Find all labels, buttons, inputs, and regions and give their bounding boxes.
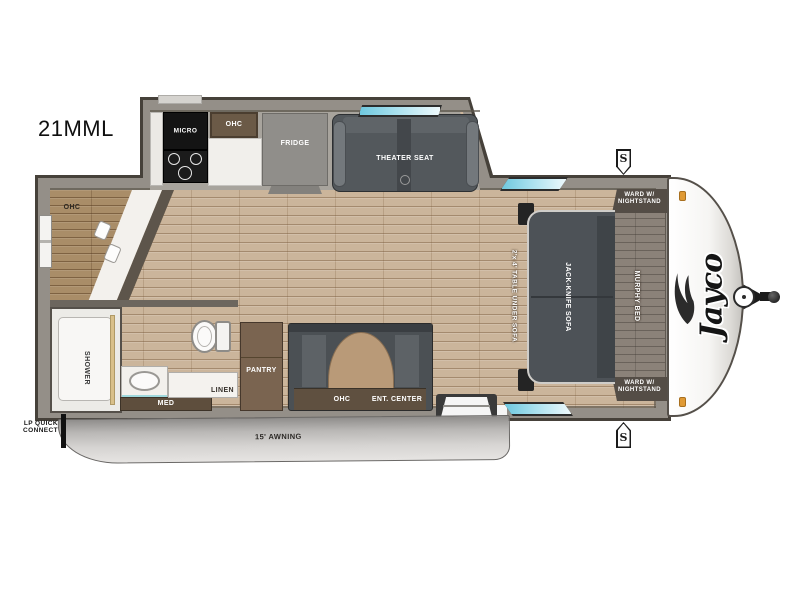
lp-label-line2: CONNECT bbox=[23, 427, 58, 434]
kitchen-ohc-label: OHC bbox=[226, 121, 243, 129]
jack-knife-sofa bbox=[527, 210, 615, 384]
ent-right-panel bbox=[395, 335, 419, 387]
brand-logo: Jayco bbox=[673, 254, 730, 338]
burner-icon bbox=[178, 166, 192, 180]
ward-nightstand-top: WARD W/ NIGHTSTAND bbox=[612, 189, 667, 213]
fridge-label: FRIDGE bbox=[281, 140, 310, 148]
ward-bottom-line2: NIGHTSTAND bbox=[618, 387, 661, 393]
theater-seat-label: THEATER SEAT bbox=[376, 155, 433, 163]
shower: SHOWER bbox=[50, 307, 122, 413]
ent-center-top bbox=[289, 324, 432, 332]
bathroom-wall bbox=[50, 300, 238, 307]
ent-left-panel bbox=[302, 335, 326, 387]
speaker-letter: S bbox=[616, 152, 631, 165]
speaker-letter: S bbox=[616, 431, 631, 444]
pantry-shelf-line bbox=[241, 357, 282, 358]
window-left-wall bbox=[39, 215, 52, 268]
burner-icon bbox=[168, 153, 180, 165]
hitch-coupler-pin bbox=[742, 295, 746, 299]
toilet-bowl-inner bbox=[197, 326, 212, 347]
exterior-speaker-top: S bbox=[616, 149, 631, 175]
pantry-cabinet: PANTRY bbox=[240, 322, 283, 411]
hitch-ball bbox=[768, 291, 780, 303]
floorplan-canvas: 21MML MICRO OHC FRIDGE THEATER SEAT bbox=[0, 0, 800, 600]
jayco-bird-icon bbox=[673, 265, 695, 327]
murphy-bed-label: MURPHY BED bbox=[632, 271, 640, 322]
wall-line bbox=[50, 188, 150, 190]
table-note-label: 2'x 4' TABLE UNDER SOFA bbox=[510, 250, 517, 342]
entry-steps-tread bbox=[441, 397, 492, 417]
ent-center-label: ENT. CENTER bbox=[372, 396, 422, 404]
brand-logo-text: Jayco bbox=[695, 254, 730, 338]
fireplace-arch bbox=[328, 332, 394, 389]
marker-light-bottom bbox=[679, 397, 686, 407]
lp-quick-connect-marker bbox=[61, 414, 66, 448]
bath-sink-bowl bbox=[129, 371, 160, 391]
ward-top-line2: NIGHTSTAND bbox=[618, 199, 661, 205]
awning-label: 15' AWNING bbox=[255, 433, 302, 442]
window-bedroom-top bbox=[500, 177, 568, 191]
kitchen-counter-left bbox=[150, 112, 163, 186]
exterior-speaker-bottom: S bbox=[616, 422, 631, 448]
toilet-bowl bbox=[191, 320, 218, 353]
entry-step-divider bbox=[443, 405, 490, 407]
bath-sink-counter bbox=[121, 366, 168, 397]
ent-ohc-label: OHC bbox=[334, 396, 351, 404]
pantry-label: PANTRY bbox=[246, 367, 276, 375]
shower-label: SHOWER bbox=[82, 351, 90, 385]
fridge-vent bbox=[268, 186, 322, 194]
sofa-seam bbox=[531, 296, 613, 298]
ward-nightstand-bottom: WARD W/ NIGHTSTAND bbox=[612, 377, 667, 401]
window-divider bbox=[40, 240, 51, 243]
ward-bottom-line1: WARD W/ bbox=[624, 380, 654, 386]
shower-door bbox=[110, 315, 115, 405]
lp-label-line1: LP QUICK bbox=[24, 420, 58, 427]
linen-closet: LINEN bbox=[168, 372, 238, 398]
cooktop bbox=[163, 150, 208, 183]
hitch-coupler bbox=[733, 286, 755, 308]
toilet-tank bbox=[215, 321, 231, 352]
ward-top-line1: WARD W/ bbox=[624, 192, 654, 198]
window-bedroom-bottom bbox=[503, 402, 573, 416]
ent-center-base: OHC ENT. CENTER bbox=[294, 388, 426, 410]
burner-icon bbox=[190, 153, 202, 165]
med-cabinet: MED bbox=[120, 397, 212, 411]
theater-armrest-right bbox=[466, 121, 479, 187]
window-galley bbox=[358, 105, 442, 117]
front-ohc-label: OHC bbox=[64, 204, 81, 212]
microwave-label: MICRO bbox=[174, 127, 198, 134]
cupholder-icon bbox=[400, 175, 410, 185]
sofa-label: JACK-KNIFE SOFA bbox=[563, 262, 571, 331]
microwave: MICRO bbox=[163, 112, 208, 150]
med-label: MED bbox=[158, 400, 175, 408]
kitchen-overhead-cabinet: OHC bbox=[210, 112, 258, 138]
fridge: FRIDGE bbox=[262, 113, 328, 186]
theater-seat: THEATER SEAT bbox=[332, 114, 478, 192]
awning: 15' AWNING bbox=[58, 415, 510, 464]
kitchen-counter bbox=[208, 138, 262, 186]
marker-light-top bbox=[679, 191, 686, 201]
theater-armrest-left bbox=[333, 121, 346, 187]
range-vent bbox=[158, 95, 202, 104]
linen-label: LINEN bbox=[211, 387, 234, 395]
page-title: 21MML bbox=[38, 116, 114, 142]
